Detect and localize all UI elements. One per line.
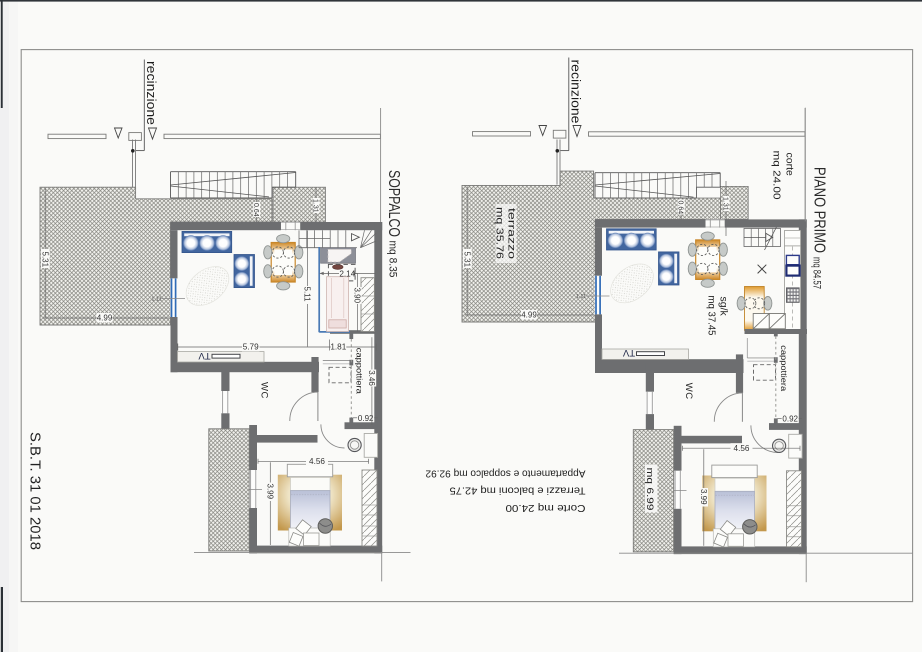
svg-text:1.11: 1.11 (151, 297, 161, 303)
svg-text:3.99: 3.99 (699, 489, 708, 505)
svg-text:1.31: 1.31 (722, 197, 729, 211)
svg-text:Appartamento e soppalco mq 92.: Appartamento e soppalco mq 92.92 (425, 468, 585, 480)
svg-text:1.81: 1.81 (330, 342, 346, 351)
svg-text:3.46: 3.46 (367, 370, 376, 386)
svg-text:0.64: 0.64 (677, 201, 684, 215)
svg-text:sg/k: sg/k (718, 297, 730, 317)
svg-text:cappottiera: cappottiera (779, 345, 789, 391)
svg-text:4.56: 4.56 (309, 457, 325, 466)
svg-text:TV: TV (622, 347, 635, 358)
svg-text:0.64: 0.64 (252, 203, 259, 217)
svg-text:TV: TV (198, 350, 211, 361)
svg-text:5.79: 5.79 (243, 343, 259, 352)
svg-text:5.31: 5.31 (40, 252, 49, 268)
svg-text:Corte mq 24.00: Corte mq 24.00 (505, 502, 585, 514)
svg-text:cappottiera: cappottiera (355, 348, 365, 394)
svg-text:3.99: 3.99 (265, 484, 274, 500)
svg-text:mq 8.35: mq 8.35 (387, 241, 399, 278)
svg-text:4.56: 4.56 (734, 444, 750, 453)
svg-text:terrazzo: terrazzo (506, 208, 518, 259)
svg-text:corte: corte (784, 153, 796, 177)
svg-text:mq 24.00: mq 24.00 (771, 151, 783, 200)
svg-text:4.99: 4.99 (521, 311, 537, 320)
svg-text:WC: WC (683, 383, 694, 400)
svg-text:1.31: 1.31 (312, 199, 319, 213)
svg-text:PIANO PRIMO: PIANO PRIMO (811, 167, 828, 253)
svg-text:recinzione: recinzione (144, 61, 159, 125)
svg-text:2.14: 2.14 (339, 270, 355, 279)
svg-text:5.11: 5.11 (303, 287, 312, 303)
svg-text:mq 35.76: mq 35.76 (494, 207, 506, 259)
svg-text:recinzione: recinzione (568, 60, 583, 124)
svg-text:5.31: 5.31 (462, 252, 471, 268)
svg-text:1.11: 1.11 (576, 294, 586, 300)
svg-text:mq 6.99: mq 6.99 (644, 468, 655, 511)
svg-text:4.99: 4.99 (97, 314, 113, 323)
svg-text:Terrazzi e balconi mq 42.75: Terrazzi e balconi mq 42.75 (449, 484, 585, 496)
svg-text:S.B.T. 31 01 2018: S.B.T. 31 01 2018 (27, 432, 43, 550)
svg-text:SOPPALCO: SOPPALCO (385, 170, 402, 237)
svg-text:mq 84.57: mq 84.57 (811, 257, 823, 289)
svg-text:0.92: 0.92 (782, 415, 798, 424)
svg-text:3.90: 3.90 (352, 288, 361, 304)
svg-text:mq 37.45: mq 37.45 (706, 296, 718, 336)
svg-text:WC: WC (259, 382, 270, 399)
